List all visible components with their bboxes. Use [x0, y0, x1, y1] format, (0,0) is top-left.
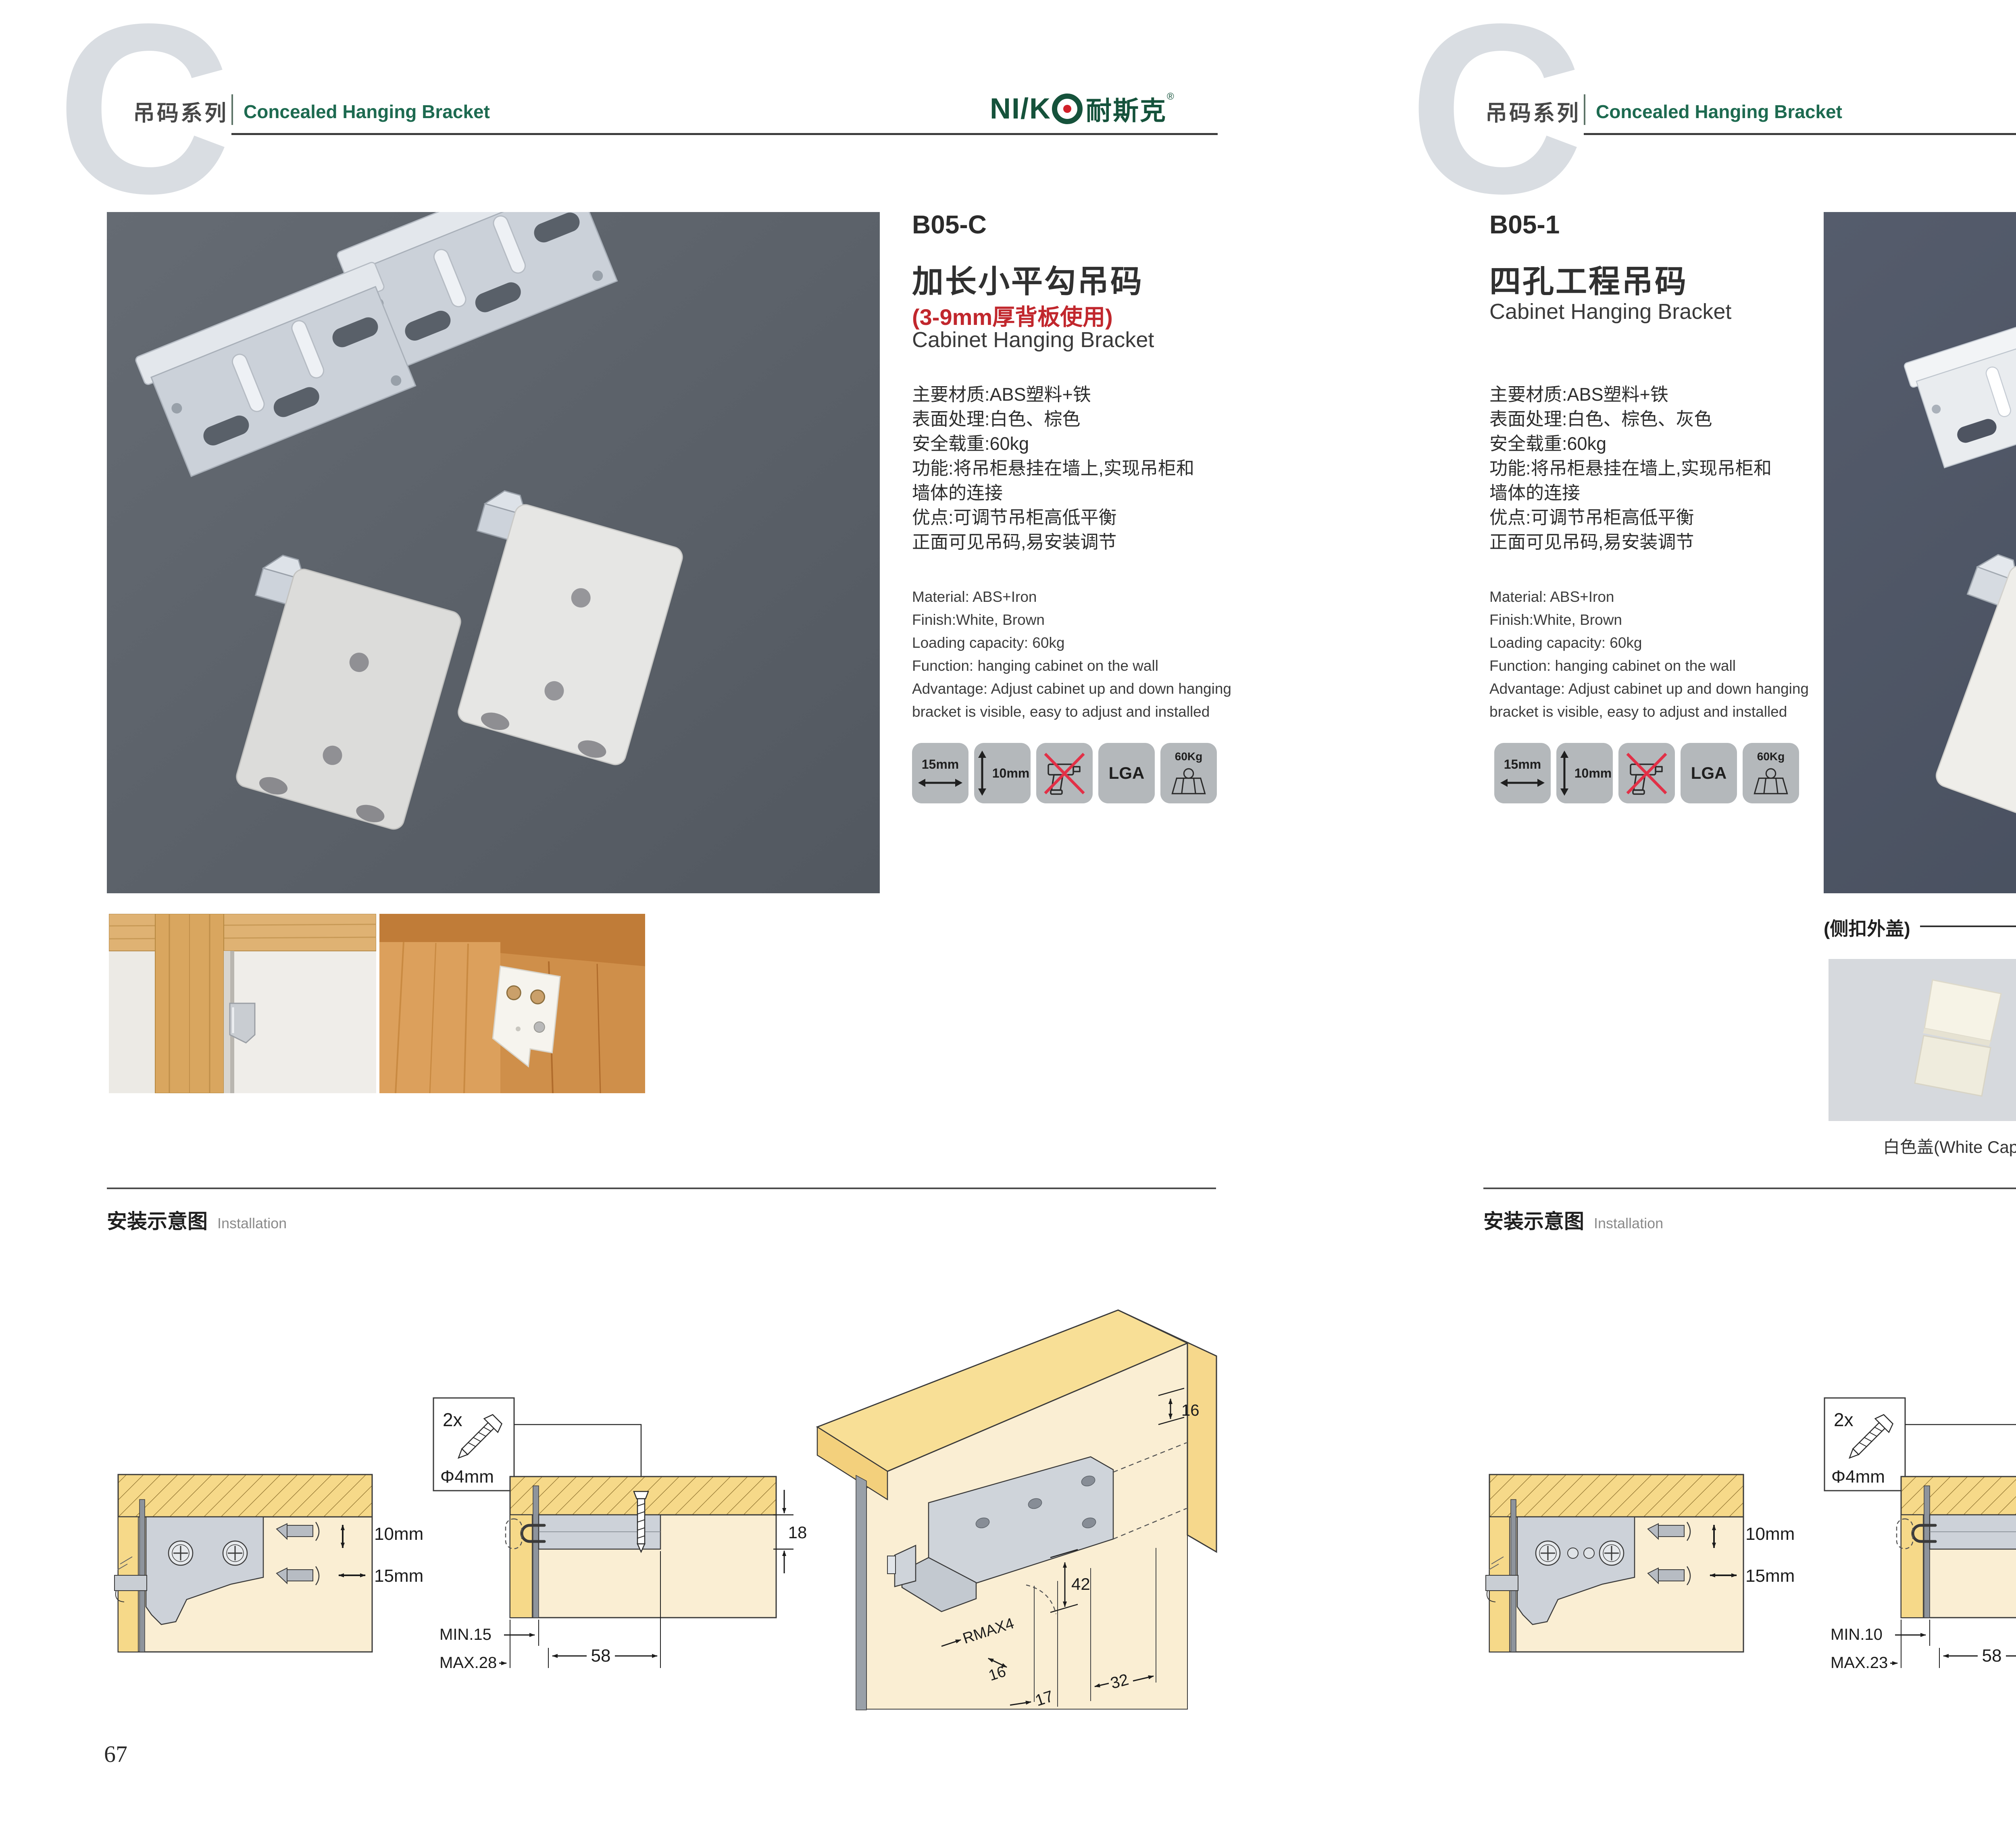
spec-line: 功能:将吊柜悬挂在墙上,实现吊柜和	[1489, 456, 1772, 480]
dim-label: 15mm	[374, 1566, 423, 1586]
header-rule	[1584, 133, 2016, 135]
brand-logo: NI/K 耐斯克 ®	[990, 90, 1174, 127]
application-photo-bracket	[379, 914, 645, 1093]
product-specs-cn: 主要材质:ABS塑料+铁 表面处理:白色、棕色 安全载重:60kg 功能:将吊柜…	[912, 382, 1194, 554]
series-title-cn: 吊码系列	[133, 95, 228, 127]
no-drill-icon	[1622, 748, 1671, 798]
badge-lga: LGA	[1098, 743, 1155, 803]
dim-label: 42	[1071, 1575, 1090, 1593]
dim-label: MIN.15	[439, 1626, 492, 1643]
spec-line: 优点:可调节吊柜高低平衡	[912, 505, 1194, 530]
spec-line: Finish:White, Brown	[912, 608, 1231, 631]
brand-logo-ring-icon	[1052, 94, 1083, 124]
page-number: 67	[104, 1741, 127, 1768]
screw-diameter-label: Φ4mm	[1831, 1467, 1885, 1487]
dim-label: 10mm	[1745, 1524, 1795, 1544]
product-title-cn: 加长小平勾吊码	[912, 256, 1143, 302]
spec-line: Material: ABS+Iron	[912, 585, 1231, 608]
badge-width-adjust: 15mm	[1494, 743, 1551, 803]
caps-section-label: (侧扣外盖)	[1824, 914, 1910, 941]
spec-line: 主要材质:ABS塑料+铁	[1489, 382, 1772, 407]
product-specs-cn: 主要材质:ABS塑料+铁 表面处理:白色、棕色、灰色 安全载重:60kg 功能:…	[1489, 382, 1772, 554]
brand-logo-dot-icon	[1063, 105, 1071, 113]
badge-height-adjust: 10mm	[1556, 743, 1613, 803]
catalog-spread: C 吊码系列 Concealed Hanging Bracket NI/K 耐斯…	[0, 0, 2016, 1847]
spec-line: 安全载重:60kg	[1489, 431, 1772, 456]
no-drill-icon	[1040, 748, 1089, 798]
product-title-en: Cabinet Hanging Bracket	[912, 327, 1154, 352]
horizontal-arrow-icon	[918, 776, 962, 790]
dim-label: 16	[1181, 1402, 1200, 1419]
spec-line: Function: hanging cabinet on the wall	[1489, 654, 1809, 677]
product-code: B05-C	[912, 210, 987, 239]
screw-diameter-label: Φ4mm	[440, 1467, 494, 1487]
badge-width-adjust: 15mm	[912, 743, 968, 803]
badge-lga-label: LGA	[1109, 763, 1145, 783]
dim-label: 18	[788, 1523, 806, 1542]
spec-line: 表面处理:白色、棕色、灰色	[1489, 407, 1772, 431]
dim-label: 58	[591, 1646, 611, 1666]
product-subtitle-red: (3-9mm厚背板使用)	[912, 299, 1113, 332]
weight-icon	[1164, 765, 1213, 796]
dim-label: 15mm	[1745, 1566, 1795, 1586]
spec-line: Material: ABS+Iron	[1489, 585, 1809, 608]
dim-label: MIN.10	[1831, 1626, 1883, 1643]
spec-line: Loading capacity: 60kg	[912, 631, 1231, 654]
spec-line: 表面处理:白色、棕色	[912, 407, 1194, 431]
installation-title-en: Installation	[217, 1215, 287, 1231]
dim-label: MAX.23	[1831, 1654, 1888, 1668]
badge-width-label: 15mm	[922, 757, 959, 772]
product-title-cn: 四孔工程吊码	[1489, 256, 1688, 302]
product-specs-en: Material: ABS+Iron Finish:White, Brown L…	[1489, 585, 1809, 723]
metal-hook-detail	[230, 1003, 255, 1043]
installation-title-cn: 安装示意图	[107, 1210, 208, 1233]
product-code: B05-1	[1489, 210, 1560, 239]
badge-load-capacity: 60Kg	[1743, 743, 1799, 803]
brand-logo-registered: ®	[1167, 91, 1174, 102]
screw-icon	[1536, 1541, 1560, 1565]
screw-count-label: 2x	[443, 1409, 462, 1430]
screw-icon	[223, 1541, 247, 1565]
spec-line: 墙体的连接	[1489, 480, 1772, 505]
page-left: C 吊码系列 Concealed Hanging Bracket NI/K 耐斯…	[0, 0, 1352, 1847]
badge-height-adjust: 10mm	[974, 743, 1031, 803]
badge-height-label: 10mm	[1574, 766, 1612, 781]
spec-line: 主要材质:ABS塑料+铁	[912, 382, 1194, 407]
installation-title-cn: 安装示意图	[1483, 1210, 1584, 1233]
installation-rule	[107, 1188, 1216, 1189]
spec-line: 安全载重:60kg	[912, 431, 1194, 456]
installation-title-en: Installation	[1594, 1215, 1663, 1231]
page-right: C 吊码系列 Concealed Hanging Bracket NI/K 耐斯…	[1352, 0, 2016, 1847]
caps-section-rule	[1920, 926, 2016, 927]
spec-line: 功能:将吊柜悬挂在墙上,实现吊柜和	[912, 456, 1194, 480]
series-title-en: Concealed Hanging Bracket	[244, 101, 490, 123]
series-title-cn: 吊码系列	[1485, 95, 1581, 127]
dim-label: 58	[1982, 1646, 2002, 1666]
diagram-screw-section: 2x Φ4mm	[1818, 1386, 2016, 1668]
spec-line: 正面可见吊码,易安装调节	[1489, 530, 1772, 554]
dim-label: MAX.28	[439, 1654, 497, 1668]
spec-line: bracket is visible, easy to adjust and i…	[912, 700, 1231, 723]
installation-rule	[1483, 1188, 2016, 1189]
product-title-en: Cabinet Hanging Bracket	[1489, 299, 1731, 324]
badge-lga: LGA	[1681, 743, 1737, 803]
spec-line: Loading capacity: 60kg	[1489, 631, 1809, 654]
badge-lga-label: LGA	[1691, 763, 1727, 783]
feature-badges: 15mm 10mm	[912, 743, 1217, 803]
diagram-side-section: 10mm 15mm	[112, 1454, 427, 1664]
header-divider	[1584, 94, 1585, 125]
badge-load-label: 60Kg	[1757, 750, 1785, 763]
brand-logo-latin: NI/K	[990, 92, 1051, 125]
dim-label: 10mm	[374, 1524, 423, 1544]
spec-line: Advantage: Adjust cabinet up and down ha…	[1489, 677, 1809, 700]
vertical-arrow-icon	[1558, 751, 1571, 796]
screw-icon	[169, 1541, 193, 1565]
spec-line: Function: hanging cabinet on the wall	[912, 654, 1231, 677]
series-title-en: Concealed Hanging Bracket	[1596, 101, 1842, 123]
cap-caption: 白色盖(White Cap)	[1829, 1134, 2016, 1158]
application-photo-hook	[109, 914, 376, 1093]
diagram-screw-section: 2x Φ4mm	[427, 1386, 806, 1668]
header-rule	[231, 133, 1218, 135]
badge-height-label: 10mm	[992, 766, 1030, 781]
diagram-side-section: 10mm 15mm	[1483, 1454, 1798, 1664]
badge-width-label: 15mm	[1504, 757, 1541, 772]
vertical-arrow-icon	[975, 751, 989, 796]
product-specs-en: Material: ABS+Iron Finish:White, Brown L…	[912, 585, 1231, 723]
brand-logo-cn: 耐斯克	[1086, 90, 1167, 127]
feature-badges: 15mm 10mm	[1494, 743, 1799, 803]
installation-title: 安装示意图Installation	[107, 1205, 287, 1234]
product-photo-main	[1824, 212, 2016, 893]
spec-line: 优点:可调节吊柜高低平衡	[1489, 505, 1772, 530]
spec-line: bracket is visible, easy to adjust and i…	[1489, 700, 1809, 723]
weight-icon	[1747, 765, 1795, 796]
spec-line: 正面可见吊码,易安装调节	[912, 530, 1194, 554]
installation-title: 安装示意图Installation	[1483, 1205, 1663, 1234]
spec-line: Finish:White, Brown	[1489, 608, 1809, 631]
cap-photo-white	[1829, 959, 2016, 1121]
spec-line: Advantage: Adjust cabinet up and down ha…	[912, 677, 1231, 700]
product-photo-main	[107, 212, 880, 893]
badge-no-drill	[1036, 743, 1093, 803]
spec-line: 墙体的连接	[912, 480, 1194, 505]
screw-icon	[1599, 1541, 1624, 1565]
screw-count-label: 2x	[1834, 1409, 1854, 1430]
badge-load-capacity: 60Kg	[1160, 743, 1217, 803]
badge-no-drill	[1618, 743, 1675, 803]
diagram-3d-corner: 16 42 RMAX4 16 17 32	[808, 1299, 1224, 1722]
horizontal-arrow-icon	[1500, 776, 1545, 790]
badge-load-label: 60Kg	[1175, 750, 1202, 763]
header-divider	[231, 94, 233, 125]
